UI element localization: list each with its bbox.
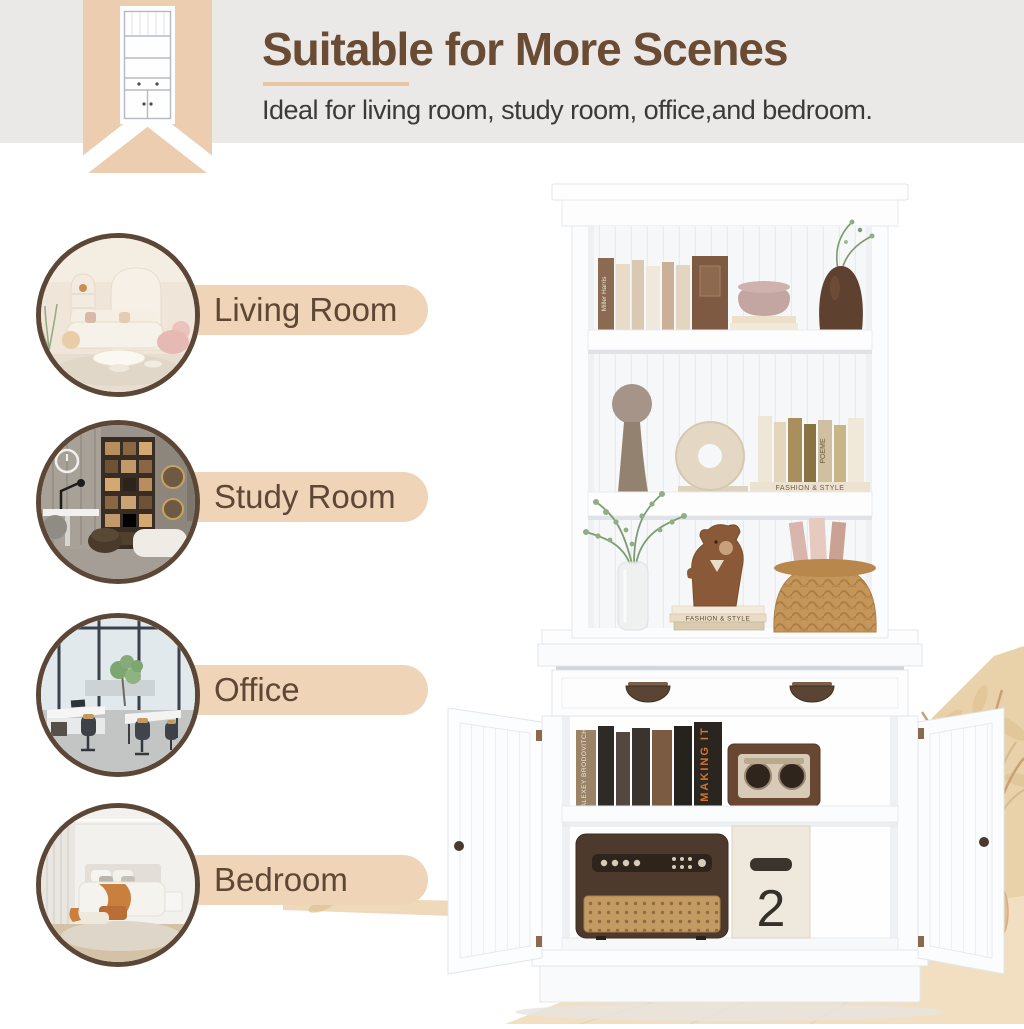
box-number: 2 [757, 880, 786, 938]
book-spine-making-it: MAKING IT [699, 726, 711, 801]
bedroom-label: Bedroom [172, 855, 428, 905]
cabinet-shelf [562, 806, 898, 822]
product-ribbon [83, 0, 212, 178]
pink-chair [157, 330, 189, 354]
sofa [133, 529, 187, 557]
office-chair [43, 515, 67, 539]
stacked-books [732, 316, 796, 323]
title-underline [263, 82, 409, 86]
vintage-radio [728, 744, 820, 806]
study-room-label: Study Room [172, 472, 428, 522]
book-spine-alexey: ALEXEY BRODOVITCH [581, 729, 588, 808]
study-room-label-text: Study Room [214, 478, 396, 516]
crown-molding [552, 184, 908, 200]
coffee-table [93, 350, 145, 366]
door-knob-left [454, 841, 464, 851]
scene-row-study-room: Study Room [36, 420, 436, 584]
book-title-fashion-style-2: FASHION & STYLE [776, 485, 845, 492]
desk [43, 509, 99, 516]
living-room-label: Living Room [172, 285, 428, 335]
wall-mirror [162, 466, 184, 488]
plinth-top [532, 950, 928, 966]
box-handle-cutout [750, 858, 792, 871]
living-room-label-text: Living Room [214, 291, 397, 329]
sofa [67, 322, 163, 348]
office-photo [36, 613, 200, 777]
plinth-base [540, 966, 920, 1002]
shelf-2 [588, 492, 872, 516]
laptop [71, 700, 85, 708]
page: Suitable for More Scenes Ideal for livin… [0, 0, 1024, 1024]
office-label-text: Office [214, 671, 300, 709]
ball-pillow [62, 331, 80, 349]
book-spine-miller-harris: Miller Harris [601, 276, 608, 311]
counter-molding [538, 644, 922, 666]
bedroom-label-text: Bedroom [214, 861, 348, 899]
page-title: Suitable for More Scenes [262, 22, 788, 76]
cabinet-shadow [515, 1003, 945, 1021]
living-room-photo [36, 233, 200, 397]
bedroom-rug [61, 921, 181, 951]
page-subtitle: Ideal for living room, study room, offic… [262, 95, 872, 126]
book-stack: FASHION & STYLE [670, 606, 766, 630]
office-label: Office [172, 665, 428, 715]
nightstand [165, 892, 182, 911]
study-room-photo [36, 420, 200, 584]
door-knob-right [979, 837, 989, 847]
ribbon-graphic [83, 0, 212, 178]
cabinet-door-left [448, 708, 542, 974]
figurine-head [612, 384, 652, 424]
retro-speaker [576, 834, 728, 940]
product-thumbnail [120, 6, 175, 124]
book-spine-poeme: POEME [820, 438, 827, 464]
scene-row-office: Office [36, 613, 436, 777]
bedroom-photo [36, 803, 200, 967]
book-title-fashion-style: FASHION & STYLE [686, 616, 751, 623]
bench [75, 912, 109, 924]
shelf-1 [588, 330, 872, 350]
drawer [552, 670, 908, 716]
bookshelf-cabinet: ALEXEY BRODOVITCH MAKING IT [448, 184, 1004, 1002]
cabinet-door-right [918, 708, 1004, 974]
storage-box: 2 [732, 826, 810, 938]
scene-row-bedroom: Bedroom [36, 803, 436, 967]
scene-row-living-room: Living Room [36, 233, 436, 397]
